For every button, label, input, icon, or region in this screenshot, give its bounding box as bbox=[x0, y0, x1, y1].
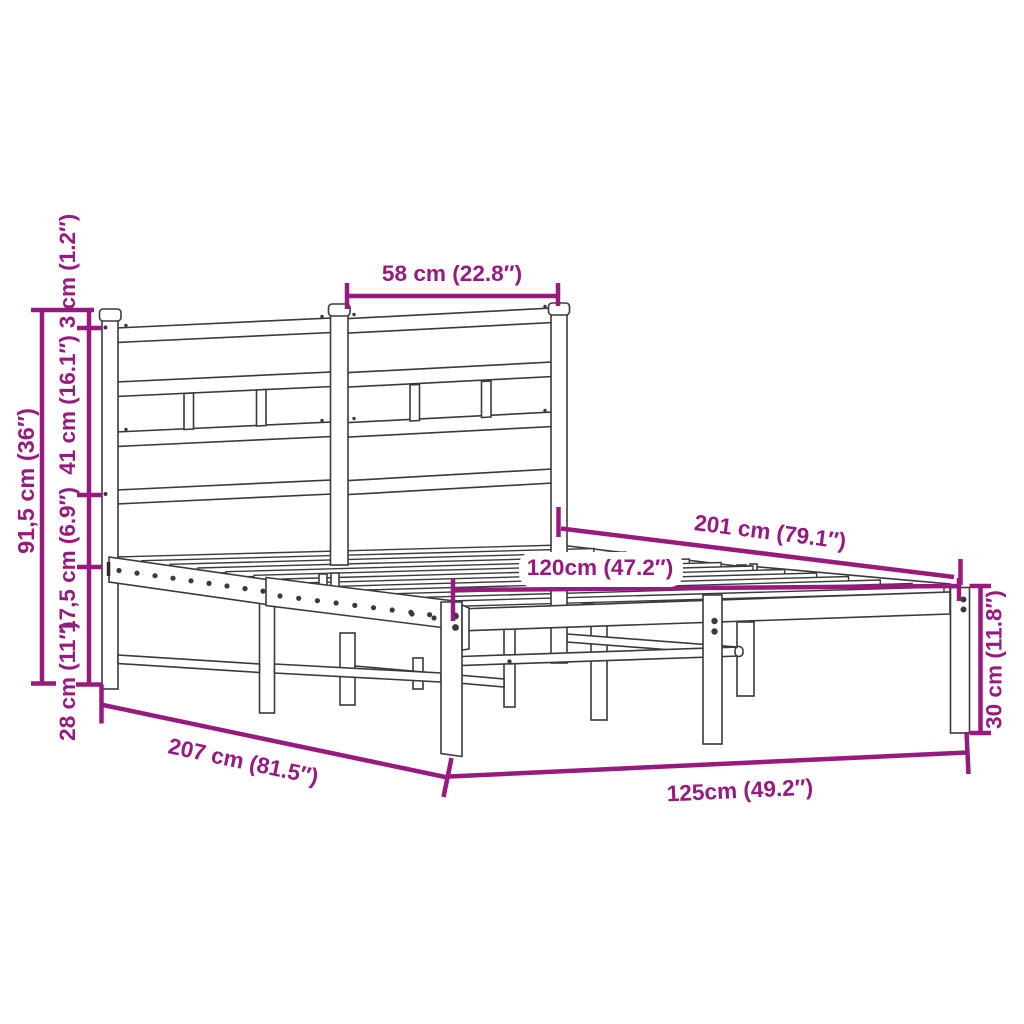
svg-text:17,5 cm (6.9″): 17,5 cm (6.9″) bbox=[55, 487, 80, 633]
svg-text:3 cm (1.2″): 3 cm (1.2″) bbox=[55, 214, 80, 329]
svg-text:30 cm (11.8″): 30 cm (11.8″) bbox=[981, 590, 1006, 729]
svg-text:28 cm (11″): 28 cm (11″) bbox=[55, 621, 80, 741]
svg-text:91,5 cm (36″): 91,5 cm (36″) bbox=[13, 408, 39, 554]
svg-text:120cm (47.2″): 120cm (47.2″) bbox=[527, 555, 673, 580]
svg-text:41 cm (16.1″): 41 cm (16.1″) bbox=[55, 335, 80, 475]
svg-text:58 cm (22.8″): 58 cm (22.8″) bbox=[382, 261, 522, 286]
